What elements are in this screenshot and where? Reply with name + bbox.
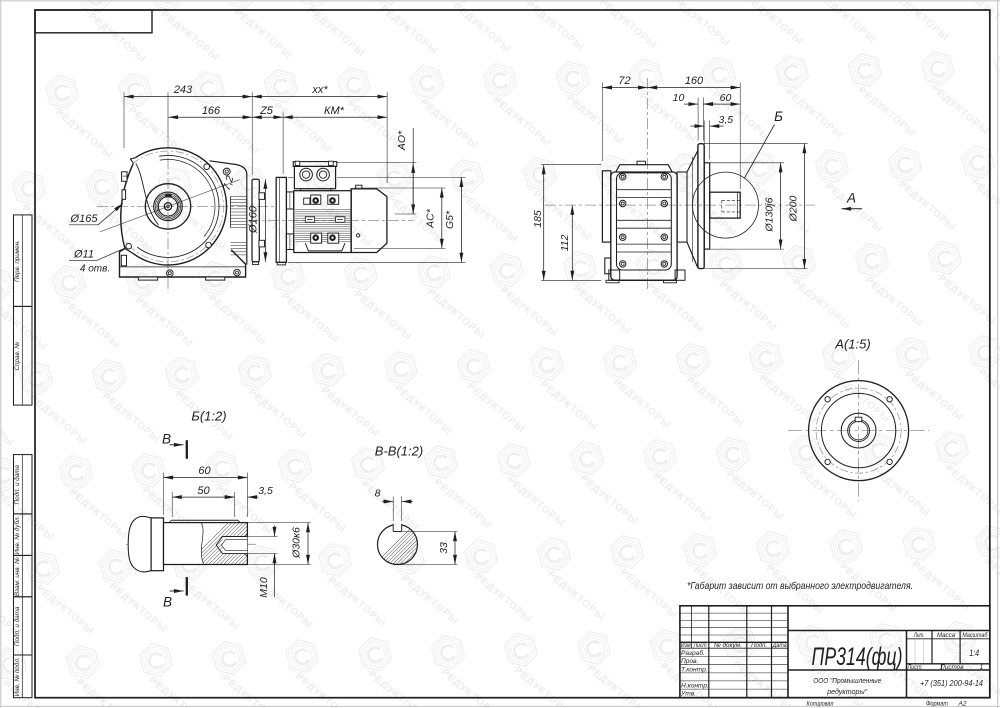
svg-text:4 отв.: 4 отв. (80, 264, 110, 275)
svg-text:50: 50 (197, 485, 210, 497)
svg-text:М10: М10 (258, 577, 270, 598)
svg-text:Z5: Z5 (259, 105, 274, 117)
svg-text:Копировал: Копировал (807, 700, 834, 707)
svg-text:AC*: AC* (425, 208, 437, 229)
svg-text:243: 243 (173, 84, 193, 96)
svg-text:60: 60 (720, 92, 732, 104)
svg-text:Изм: Изм (681, 642, 692, 649)
svg-text:Подп. и дата: Подп. и дата (13, 465, 21, 505)
svg-text:33: 33 (438, 542, 450, 554)
svg-text:Формат: Формат (926, 700, 948, 707)
svg-text:Утв.: Утв. (680, 691, 696, 698)
svg-text:1:4: 1:4 (969, 648, 979, 658)
svg-text:G5*: G5* (444, 210, 456, 229)
svg-text:А2: А2 (958, 700, 967, 707)
svg-text:Ø165: Ø165 (70, 213, 99, 225)
svg-text:60: 60 (198, 465, 211, 477)
svg-text:Н.контр.: Н.контр. (681, 683, 709, 690)
svg-text:Лист: Лист (907, 664, 922, 671)
svg-text:Масштаб: Масштаб (962, 633, 988, 639)
svg-text:10: 10 (673, 92, 685, 104)
svg-text:Ø160: Ø160 (248, 205, 260, 234)
svg-text:Дата: Дата (772, 642, 787, 649)
svg-text:3,5: 3,5 (718, 114, 733, 126)
svg-text:72: 72 (618, 75, 630, 87)
svg-text:185: 185 (532, 210, 544, 228)
svg-text:ПР314(фц): ПР314(фц) (812, 643, 903, 671)
svg-text:№ докум.: № докум. (714, 642, 742, 649)
svg-text:Подп. и дата: Подп. и дата (13, 606, 21, 646)
svg-text:В: В (162, 432, 171, 447)
svg-text:Инв. № подл.: Инв. № подл. (13, 657, 21, 696)
svg-text:КМ*: КМ* (324, 105, 345, 117)
svg-text:Ø11: Ø11 (73, 249, 94, 261)
svg-text:112: 112 (559, 234, 571, 251)
svg-text:166: 166 (202, 105, 221, 117)
svg-text:8: 8 (375, 488, 381, 500)
svg-text:Перв. примен.: Перв. примен. (14, 240, 21, 282)
svg-text:Масса: Масса (937, 633, 956, 639)
svg-text:AO*: AO* (396, 130, 408, 151)
svg-text:Справ. №: Справ. № (14, 342, 21, 371)
svg-text:редукторы": редукторы" (826, 687, 867, 696)
svg-text:+7 (351) 200-94-14: +7 (351) 200-94-14 (920, 679, 984, 688)
svg-text:Ø130j6: Ø130j6 (764, 197, 776, 232)
svg-text:ООО "Промышленные: ООО "Промышленные (813, 676, 881, 685)
svg-text:160: 160 (685, 75, 704, 87)
svg-text:Ø30к6: Ø30к6 (291, 527, 303, 559)
svg-text:Инв. № дубл.: Инв. № дубл. (13, 516, 21, 555)
svg-text:Разраб.: Разраб. (681, 649, 705, 657)
svg-text:А: А (846, 191, 856, 206)
svg-text:Лит.: Лит. (913, 633, 925, 639)
svg-text:Подп.: Подп. (751, 642, 767, 649)
svg-text:Лист: Лист (693, 642, 707, 649)
svg-text:xx*: xx* (311, 84, 328, 96)
svg-text:В: В (163, 595, 172, 610)
svg-text:А(1:5): А(1:5) (834, 337, 870, 352)
svg-text:*Габарит зависит от выбранного: *Габарит зависит от выбранного электродв… (687, 580, 913, 592)
svg-text:3,5: 3,5 (258, 485, 273, 497)
svg-text:В-В(1:2): В-В(1:2) (375, 444, 423, 459)
svg-text:Ø200: Ø200 (787, 195, 799, 222)
svg-text:Б: Б (774, 109, 783, 124)
svg-text:Листов: Листов (939, 664, 964, 671)
svg-text:Т.контр.: Т.контр. (681, 666, 708, 673)
svg-text:Взам. инв. №: Взам. инв. № (14, 557, 21, 596)
svg-text:1: 1 (980, 664, 983, 671)
svg-text:Пров.: Пров. (681, 658, 699, 665)
svg-text:Б(1:2): Б(1:2) (191, 409, 226, 424)
